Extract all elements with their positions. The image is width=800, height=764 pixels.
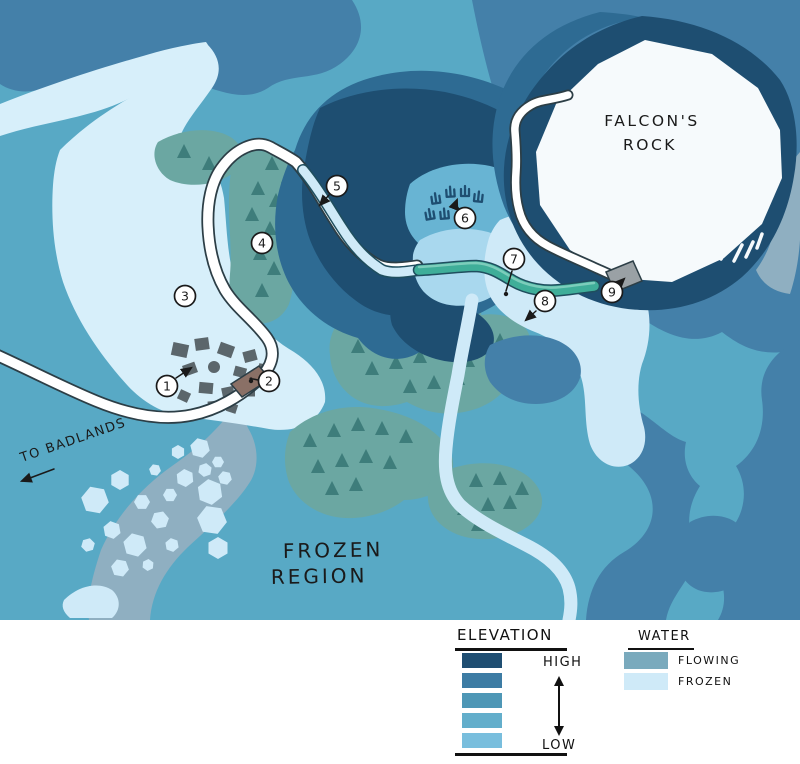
svg-text:5: 5 [333,178,341,193]
water-rule [628,648,694,650]
falcons-rock-label-2: ROCK [623,136,677,154]
elevation-swatch-high [462,653,502,668]
map-marker-2: 2 [259,371,280,392]
region-label-2: REGION [271,563,368,589]
map-canvas: FALCON'S ROCK FROZEN REGION TO BADLANDS … [0,0,800,620]
svg-text:7: 7 [510,251,518,266]
svg-text:4: 4 [258,235,266,250]
ruin-block [194,337,210,351]
svg-text:8: 8 [541,293,549,308]
map-marker-3: 3 [175,286,196,307]
water-swatch-flowing [624,652,668,669]
map-marker-9: 9 [602,282,623,303]
elevation-low-label: LOW [542,738,576,753]
elevation-swatch-3 [462,693,502,708]
svg-text:1: 1 [163,378,171,393]
elevation-rule-bottom [455,753,567,756]
legend-panel: ELEVATION HIGH LOW WATER FLOWING FROZEN [0,620,800,764]
water-frozen-label: FROZEN [678,675,732,688]
region-label-1: FROZEN [283,537,384,563]
water-legend-title: WATER [638,629,691,644]
svg-text:9: 9 [608,284,616,299]
water-flowing-label: FLOWING [678,654,740,667]
frozen-region-map-screenshot: FALCON'S ROCK FROZEN REGION TO BADLANDS … [0,0,800,764]
falcons-rock-label-1: FALCON'S [604,112,699,130]
map-marker-5: 5 [327,176,348,197]
ruin-block [208,361,220,373]
elevation-rule-top [455,648,567,651]
svg-text:6: 6 [461,210,469,225]
elevation-swatch-2 [462,673,502,688]
ruin-block [199,382,214,394]
svg-text:3: 3 [181,288,189,303]
map-marker-4: 4 [252,233,273,254]
elevation-swatch-4 [462,713,502,728]
elevation-legend-title: ELEVATION [457,626,553,644]
map-marker-1: 1 [157,376,178,397]
map-marker-8: 8 [535,291,556,312]
water-swatch-frozen [624,673,668,690]
elevation-range-arrow [546,674,572,738]
svg-text:2: 2 [265,373,273,388]
map-marker-7: 7 [504,249,525,270]
elevation-high-label: HIGH [543,655,582,670]
elevation-swatch-low [462,733,502,748]
map-marker-6: 6 [455,208,476,229]
